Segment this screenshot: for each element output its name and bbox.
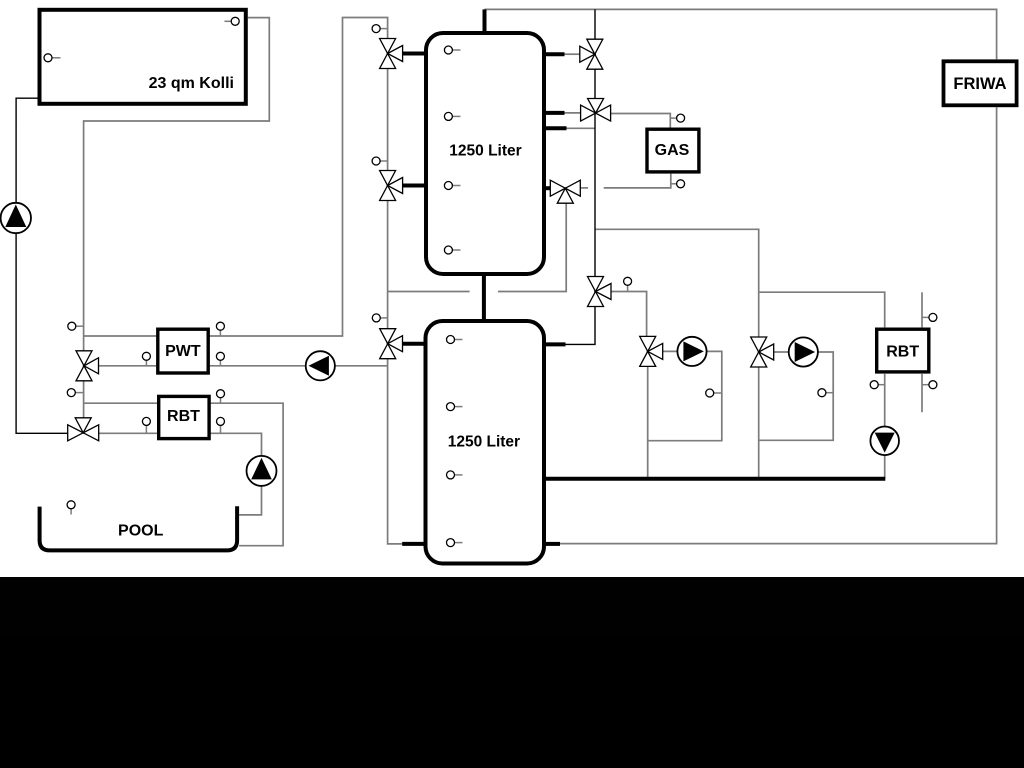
svg-text:23 qm Kolli: 23 qm Kolli <box>149 75 234 92</box>
svg-text:FRIWA: FRIWA <box>953 75 1006 93</box>
svg-text:POOL: POOL <box>118 522 164 539</box>
svg-text:PWT: PWT <box>165 343 201 360</box>
svg-text:1250 Liter: 1250 Liter <box>449 143 521 160</box>
svg-text:RBT: RBT <box>167 408 200 425</box>
svg-text:1250 Liter: 1250 Liter <box>448 433 520 450</box>
svg-text:RBT: RBT <box>886 343 919 360</box>
svg-text:GAS: GAS <box>655 142 690 159</box>
